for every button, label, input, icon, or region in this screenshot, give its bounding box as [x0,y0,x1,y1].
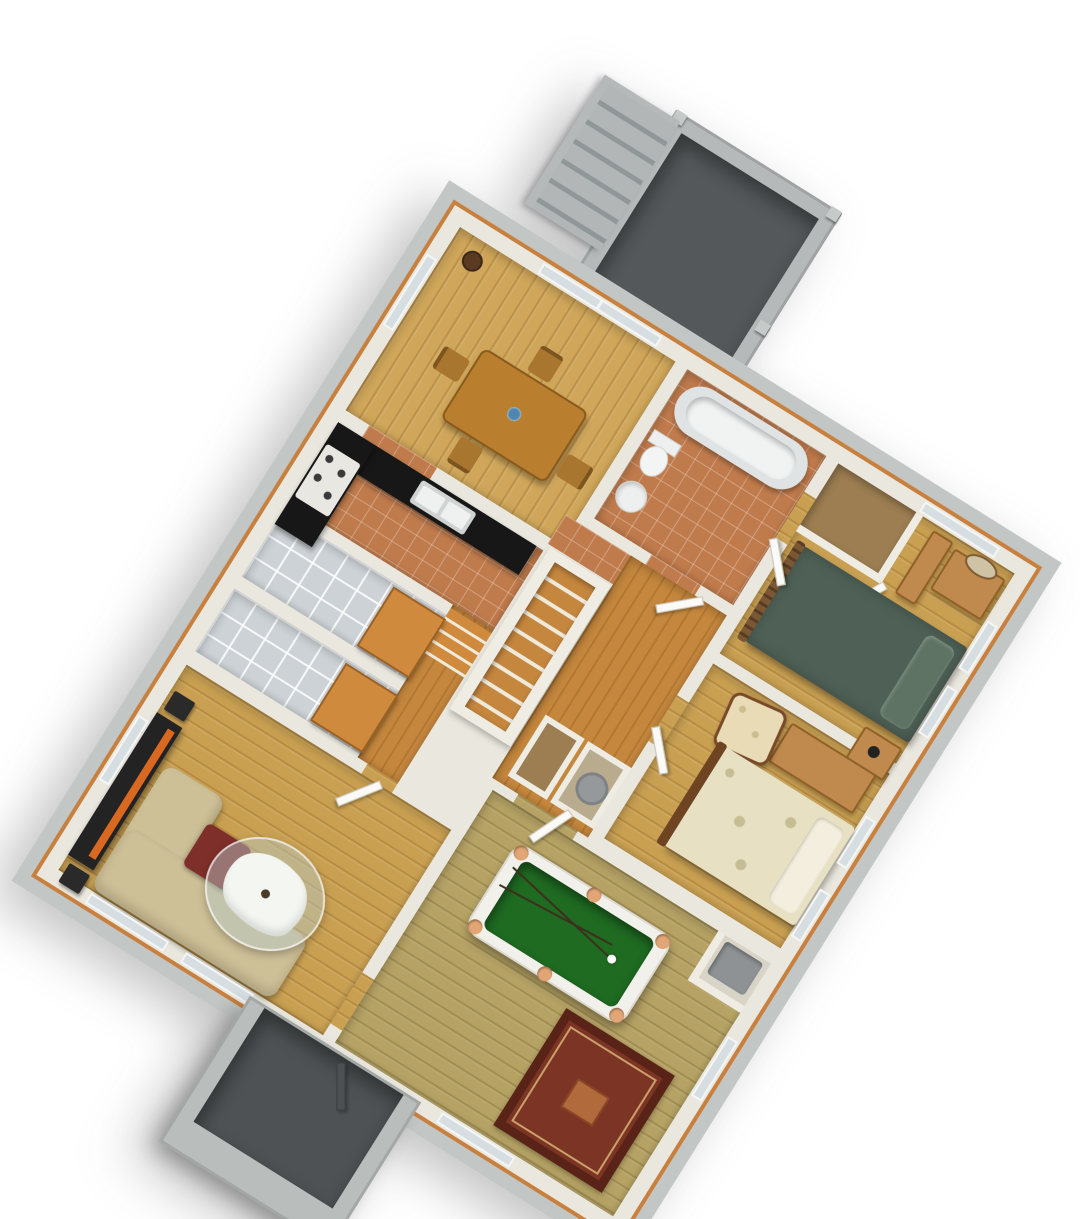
sink-basin [414,485,446,514]
nightstand-lamp [865,744,882,761]
house-shell [36,205,1036,1219]
appliance [706,941,763,997]
porch-post [754,319,771,336]
stove-burner [322,490,333,501]
water-heater-tank [569,766,614,811]
table-ornament [259,888,272,901]
front-door [337,1063,346,1111]
floorplan-scene [0,0,1080,1219]
stove-burner [312,472,323,483]
porch-post [825,206,842,223]
bed-damask-pillow [766,815,846,917]
stove-burner [324,453,335,464]
bed-green-pillow [877,633,957,732]
table-centerpiece [505,404,524,423]
stove-burner [336,468,347,479]
sink-basin [440,501,472,530]
